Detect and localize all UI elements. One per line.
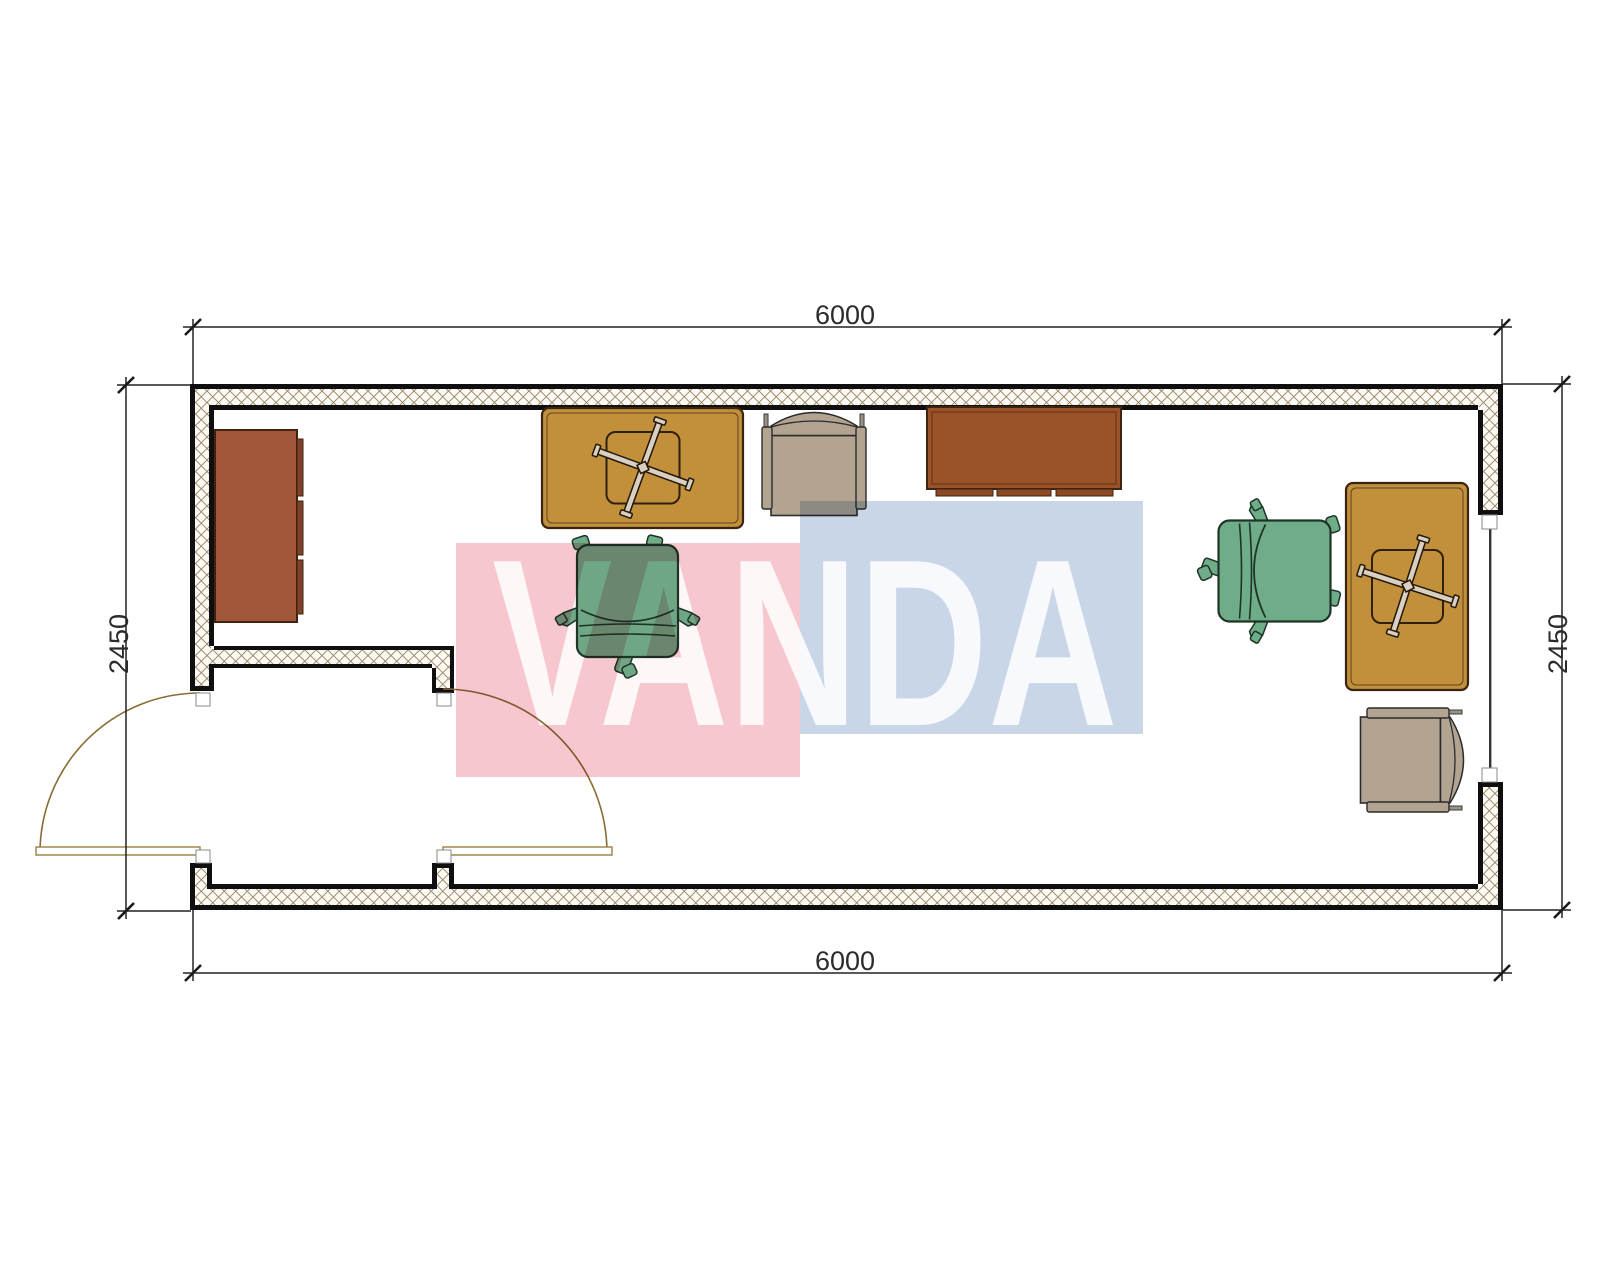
svg-text:2450: 2450 bbox=[104, 614, 134, 674]
svg-text:6000: 6000 bbox=[815, 946, 875, 976]
svg-text:2450: 2450 bbox=[1543, 614, 1573, 674]
svg-text:VANDA: VANDA bbox=[492, 509, 1118, 775]
svg-text:6000: 6000 bbox=[815, 300, 875, 330]
